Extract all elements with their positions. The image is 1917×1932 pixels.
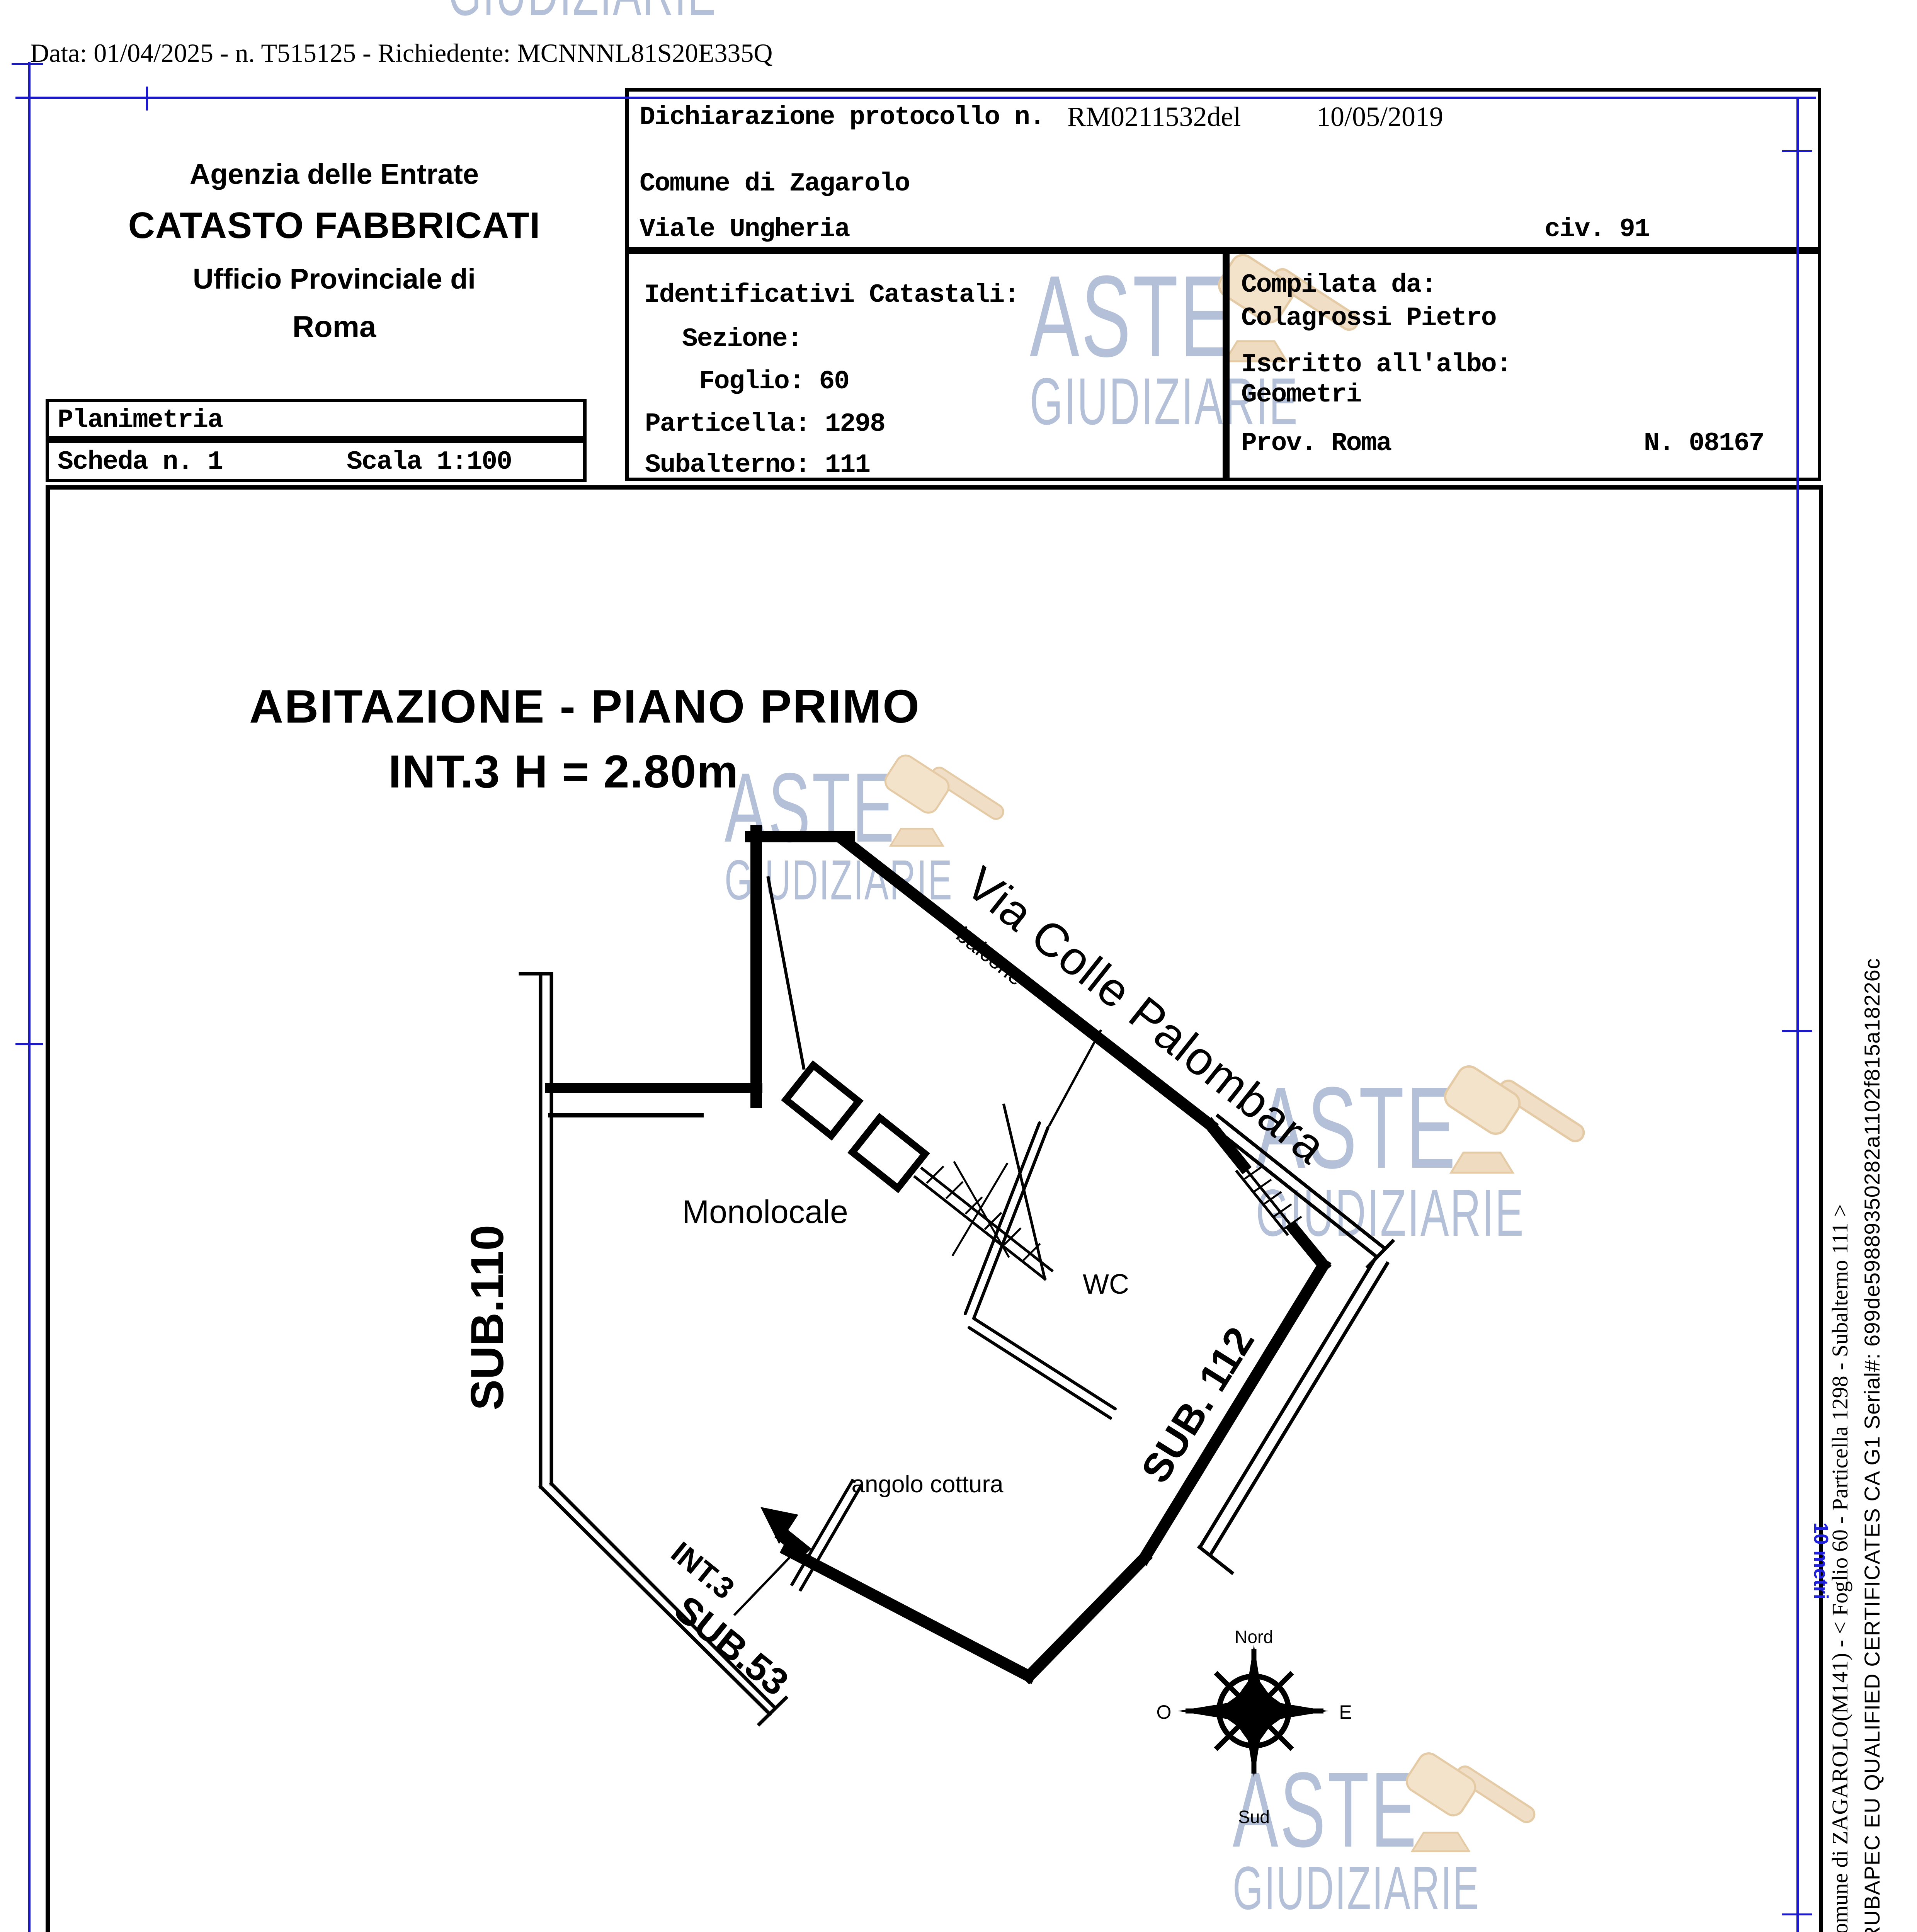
sezione-label: Sezione: [682, 324, 802, 354]
declaration-date: 10/05/2019 [1317, 101, 1443, 133]
frame-tick [12, 63, 43, 65]
frame-tick [146, 87, 148, 111]
cadastral-ids-box: Identificativi Catastali: Sezione: Fogli… [625, 250, 1226, 481]
cadastral-floorplan-page: { "document": { "request_line": "Data: 0… [0, 0, 1917, 1932]
agency-line2: CATASTO FABBRICATI [71, 204, 597, 247]
frame-line-left [28, 62, 31, 1932]
frame-tick [1782, 1913, 1812, 1915]
via-label: Viale Ungheria [640, 214, 849, 244]
street-name-label: Via Colle Palombara [956, 857, 1336, 1174]
agency-line1: Agenzia delle Entrate [71, 158, 597, 190]
compass-rose-icon: Nord Sud E O [1157, 1627, 1352, 1827]
request-header-line: Data: 01/04/2025 - n. T515125 - Richiede… [30, 38, 772, 68]
frame-line-top [15, 97, 1816, 99]
prov-label: Prov. Roma [1241, 429, 1391, 458]
plan-title: ABITAZIONE - PIANO PRIMO [249, 679, 920, 733]
declaration-number: RM0211532del [1067, 101, 1241, 133]
frame-tick [15, 1043, 43, 1045]
wc-label: WC [1083, 1269, 1129, 1300]
sub53-label: SUB.53 [667, 1587, 796, 1704]
subalterno-label: Subalterno: 111 [645, 450, 870, 480]
plan-subtitle: INT.3 H = 2.80m [388, 745, 739, 798]
scale-marker-label: 10 metri [1809, 1522, 1832, 1599]
compass-west-label: O [1157, 1701, 1172, 1723]
compiler-name: Colagrossi Pietro [1241, 303, 1496, 333]
agency-header: Agenzia delle Entrate CATASTO FABBRICATI… [71, 158, 597, 344]
civ-label: civ. 91 [1544, 214, 1650, 244]
foglio-label: Foglio: 60 [699, 367, 849, 396]
compiler-title: Compilata da: [1241, 270, 1436, 300]
balcony-pillars [786, 1065, 925, 1189]
cadastral-title: Identificativi Catastali: [644, 280, 1019, 310]
monolocale-label: Monolocale [682, 1194, 848, 1230]
declaration-box: Dichiarazione protocollo n. RM0211532del… [625, 88, 1821, 250]
albo-value: Geometri [1241, 380, 1361, 410]
frame-line-right [1796, 97, 1799, 1932]
albo-label: Iscritto all'albo: [1241, 350, 1511, 379]
compass-south-label: Sud [1238, 1807, 1270, 1827]
particella-label: Particella: 1298 [645, 409, 885, 439]
declaration-label: Dichiarazione protocollo n. [640, 102, 1044, 132]
compass-east-label: E [1339, 1701, 1352, 1723]
margin-signature-line: Firmato Da: DELIAMEONE GIOERMACONE Emess… [1859, 958, 1885, 1932]
comune-label: Comune di Zagarolo [640, 169, 910, 199]
planimetria-box: Planimetria [46, 399, 587, 440]
scheda-label: Scheda n. 1 [58, 447, 223, 477]
albo-number: N. 08167 [1644, 429, 1764, 458]
compiler-box: Compilata da: Colagrossi Pietro Iscritto… [1226, 250, 1821, 481]
scala-label: Scala 1:100 [347, 447, 512, 477]
sub110-label: SUB.110 [461, 1225, 513, 1410]
scheda-box: Scheda n. 1 Scala 1:100 [46, 440, 587, 482]
frame-tick [1782, 150, 1812, 152]
angolo-cottura-label: angolo cottura [852, 1471, 1004, 1498]
agency-line4: Roma [71, 309, 597, 344]
agency-line3: Ufficio Provinciale di [71, 262, 597, 295]
compass-north-label: Nord [1235, 1627, 1273, 1647]
frame-tick [1782, 1030, 1812, 1032]
planimetria-label: Planimetria [58, 405, 223, 435]
